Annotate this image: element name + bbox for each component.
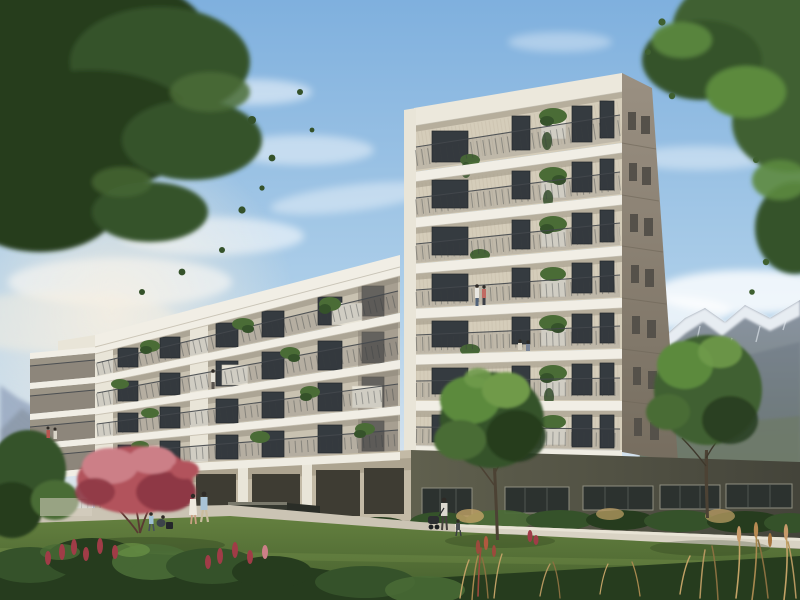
rendering-canvas: Sunlit architectural rendering of a mode… <box>0 0 800 600</box>
architectural-rendering: Sunlit architectural rendering of a mode… <box>0 0 800 600</box>
tower-pier <box>404 108 416 454</box>
